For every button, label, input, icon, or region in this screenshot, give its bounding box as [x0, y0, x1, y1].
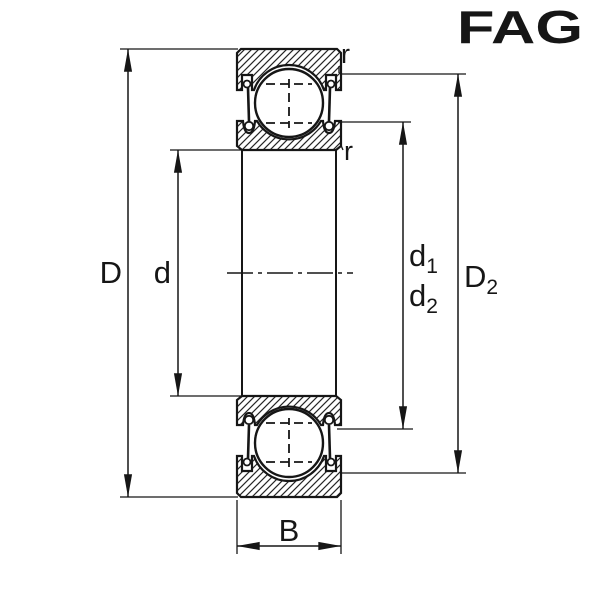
bearing-technical-drawing: D d d1 d2 D2 B r r FAG: [0, 0, 600, 600]
bearing-upper-section: [237, 49, 341, 150]
dim-label-d: d: [154, 255, 171, 290]
shield-anchor-circle: [328, 81, 335, 88]
dim-label-d1: d1: [409, 238, 438, 278]
bearing-lower-section: [237, 396, 341, 497]
dim-label-B: B: [279, 513, 300, 548]
drawing-canvas: D d d1 d2 D2 B r r FAG: [0, 0, 600, 600]
dim-label-r-outer: r: [341, 39, 350, 69]
shield-anchor-circle: [244, 81, 251, 88]
dim-label-D2: D2: [464, 259, 498, 299]
shield-tip-circle: [245, 122, 253, 130]
dim-label-D: D: [100, 255, 122, 290]
dim-label-d2: d2: [409, 278, 438, 318]
fag-logo: FAG: [457, 1, 583, 53]
dim-label-r-inner: r: [344, 136, 353, 166]
shield-tip-circle: [325, 122, 333, 130]
